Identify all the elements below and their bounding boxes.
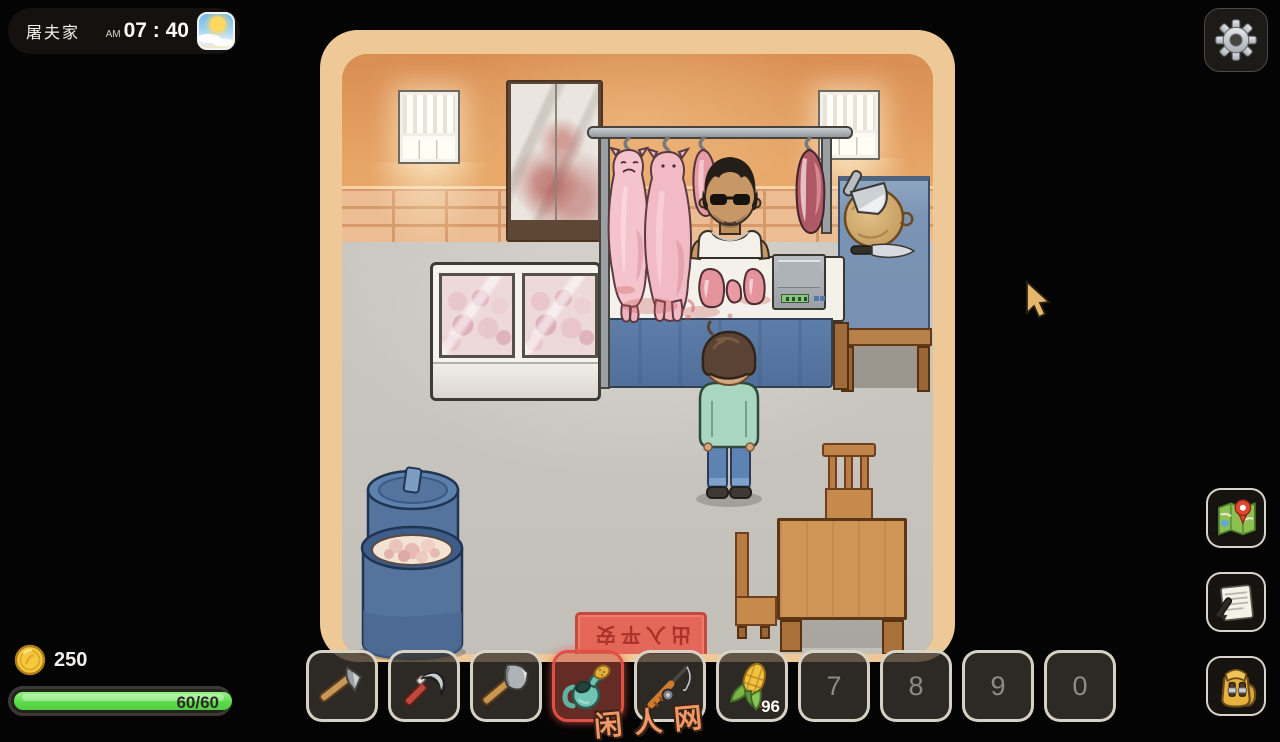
dining-table (777, 518, 907, 620)
map-icon (1212, 494, 1260, 542)
location-time-bar: 屠夫家 AM 07 : 40 (8, 8, 240, 54)
window-left (400, 92, 458, 162)
doormat: 出入平安 (575, 612, 707, 654)
slot-number: 9 (990, 671, 1005, 702)
counter-blue-cloth (600, 318, 833, 388)
prep-table-leg (917, 346, 930, 392)
bloody-curtain (511, 84, 598, 220)
stamina-value: 60/60 (176, 693, 219, 713)
bench-seat (735, 596, 777, 626)
backpack-icon (1212, 662, 1260, 710)
room-interior: 出入平安 (342, 54, 933, 654)
hotbar-slot-hoe[interactable] (306, 650, 378, 722)
hotbar-slot-sickle[interactable] (388, 650, 460, 722)
inventory-button[interactable] (1206, 656, 1266, 716)
item-count: 96 (761, 697, 780, 717)
time-value: 07 : 40 (124, 19, 189, 43)
window-light-glow (364, 162, 494, 257)
door-with-curtain[interactable] (506, 80, 603, 242)
freezer-glass-right (522, 273, 598, 358)
coin-amount: 250 (54, 649, 87, 672)
map-button[interactable] (1206, 488, 1266, 548)
chair-seat (825, 488, 873, 521)
stamina-bar: 60/60 (8, 686, 232, 716)
journal-button[interactable] (1206, 572, 1266, 632)
meat-display-freezer[interactable] (430, 262, 601, 401)
axe-icon (477, 657, 535, 715)
notebook-icon (1212, 578, 1260, 626)
gold-coin-icon (14, 644, 46, 676)
time-meridiem: AM (106, 29, 121, 40)
hotbar-slot-9[interactable]: 9 (962, 650, 1034, 722)
prep-table-apron (836, 328, 932, 346)
freezer-glass-left (439, 273, 515, 358)
hotbar-slot-corn[interactable]: 96 (716, 650, 788, 722)
slot-number: 7 (826, 671, 841, 702)
settings-button[interactable] (1204, 8, 1268, 72)
hotbar-slot-8[interactable]: 8 (880, 650, 952, 722)
weather-icon[interactable] (197, 12, 235, 50)
location-label: 屠夫家 (26, 19, 80, 43)
doormat-text: 出入平安 (591, 622, 691, 651)
table-leg (882, 620, 904, 654)
table-leg (780, 620, 802, 652)
coin-counter: 250 (14, 644, 87, 676)
gear-icon (1212, 16, 1260, 64)
hotbar-slot-7[interactable]: 7 (798, 650, 870, 722)
mouse-cursor (1027, 282, 1049, 317)
hotbar-slot-0[interactable]: 0 (1044, 650, 1116, 722)
weighing-scale (772, 254, 826, 310)
freezer-base (433, 362, 598, 398)
hotbar-slot-axe[interactable] (470, 650, 542, 722)
slot-number: 0 (1072, 671, 1087, 702)
game-screen: 出入平安 (0, 0, 1280, 742)
hoe-icon (313, 657, 371, 715)
slot-number: 8 (908, 671, 923, 702)
bench-backrest (735, 532, 749, 602)
prep-table (838, 176, 930, 330)
prep-table-shadow-panel (854, 346, 917, 388)
window-right (820, 92, 878, 158)
counter-leg (833, 322, 849, 390)
sickle-icon (395, 657, 453, 715)
clock: AM 07 : 40 (106, 19, 189, 43)
butcher-shop-room: 出入平安 (320, 30, 955, 662)
